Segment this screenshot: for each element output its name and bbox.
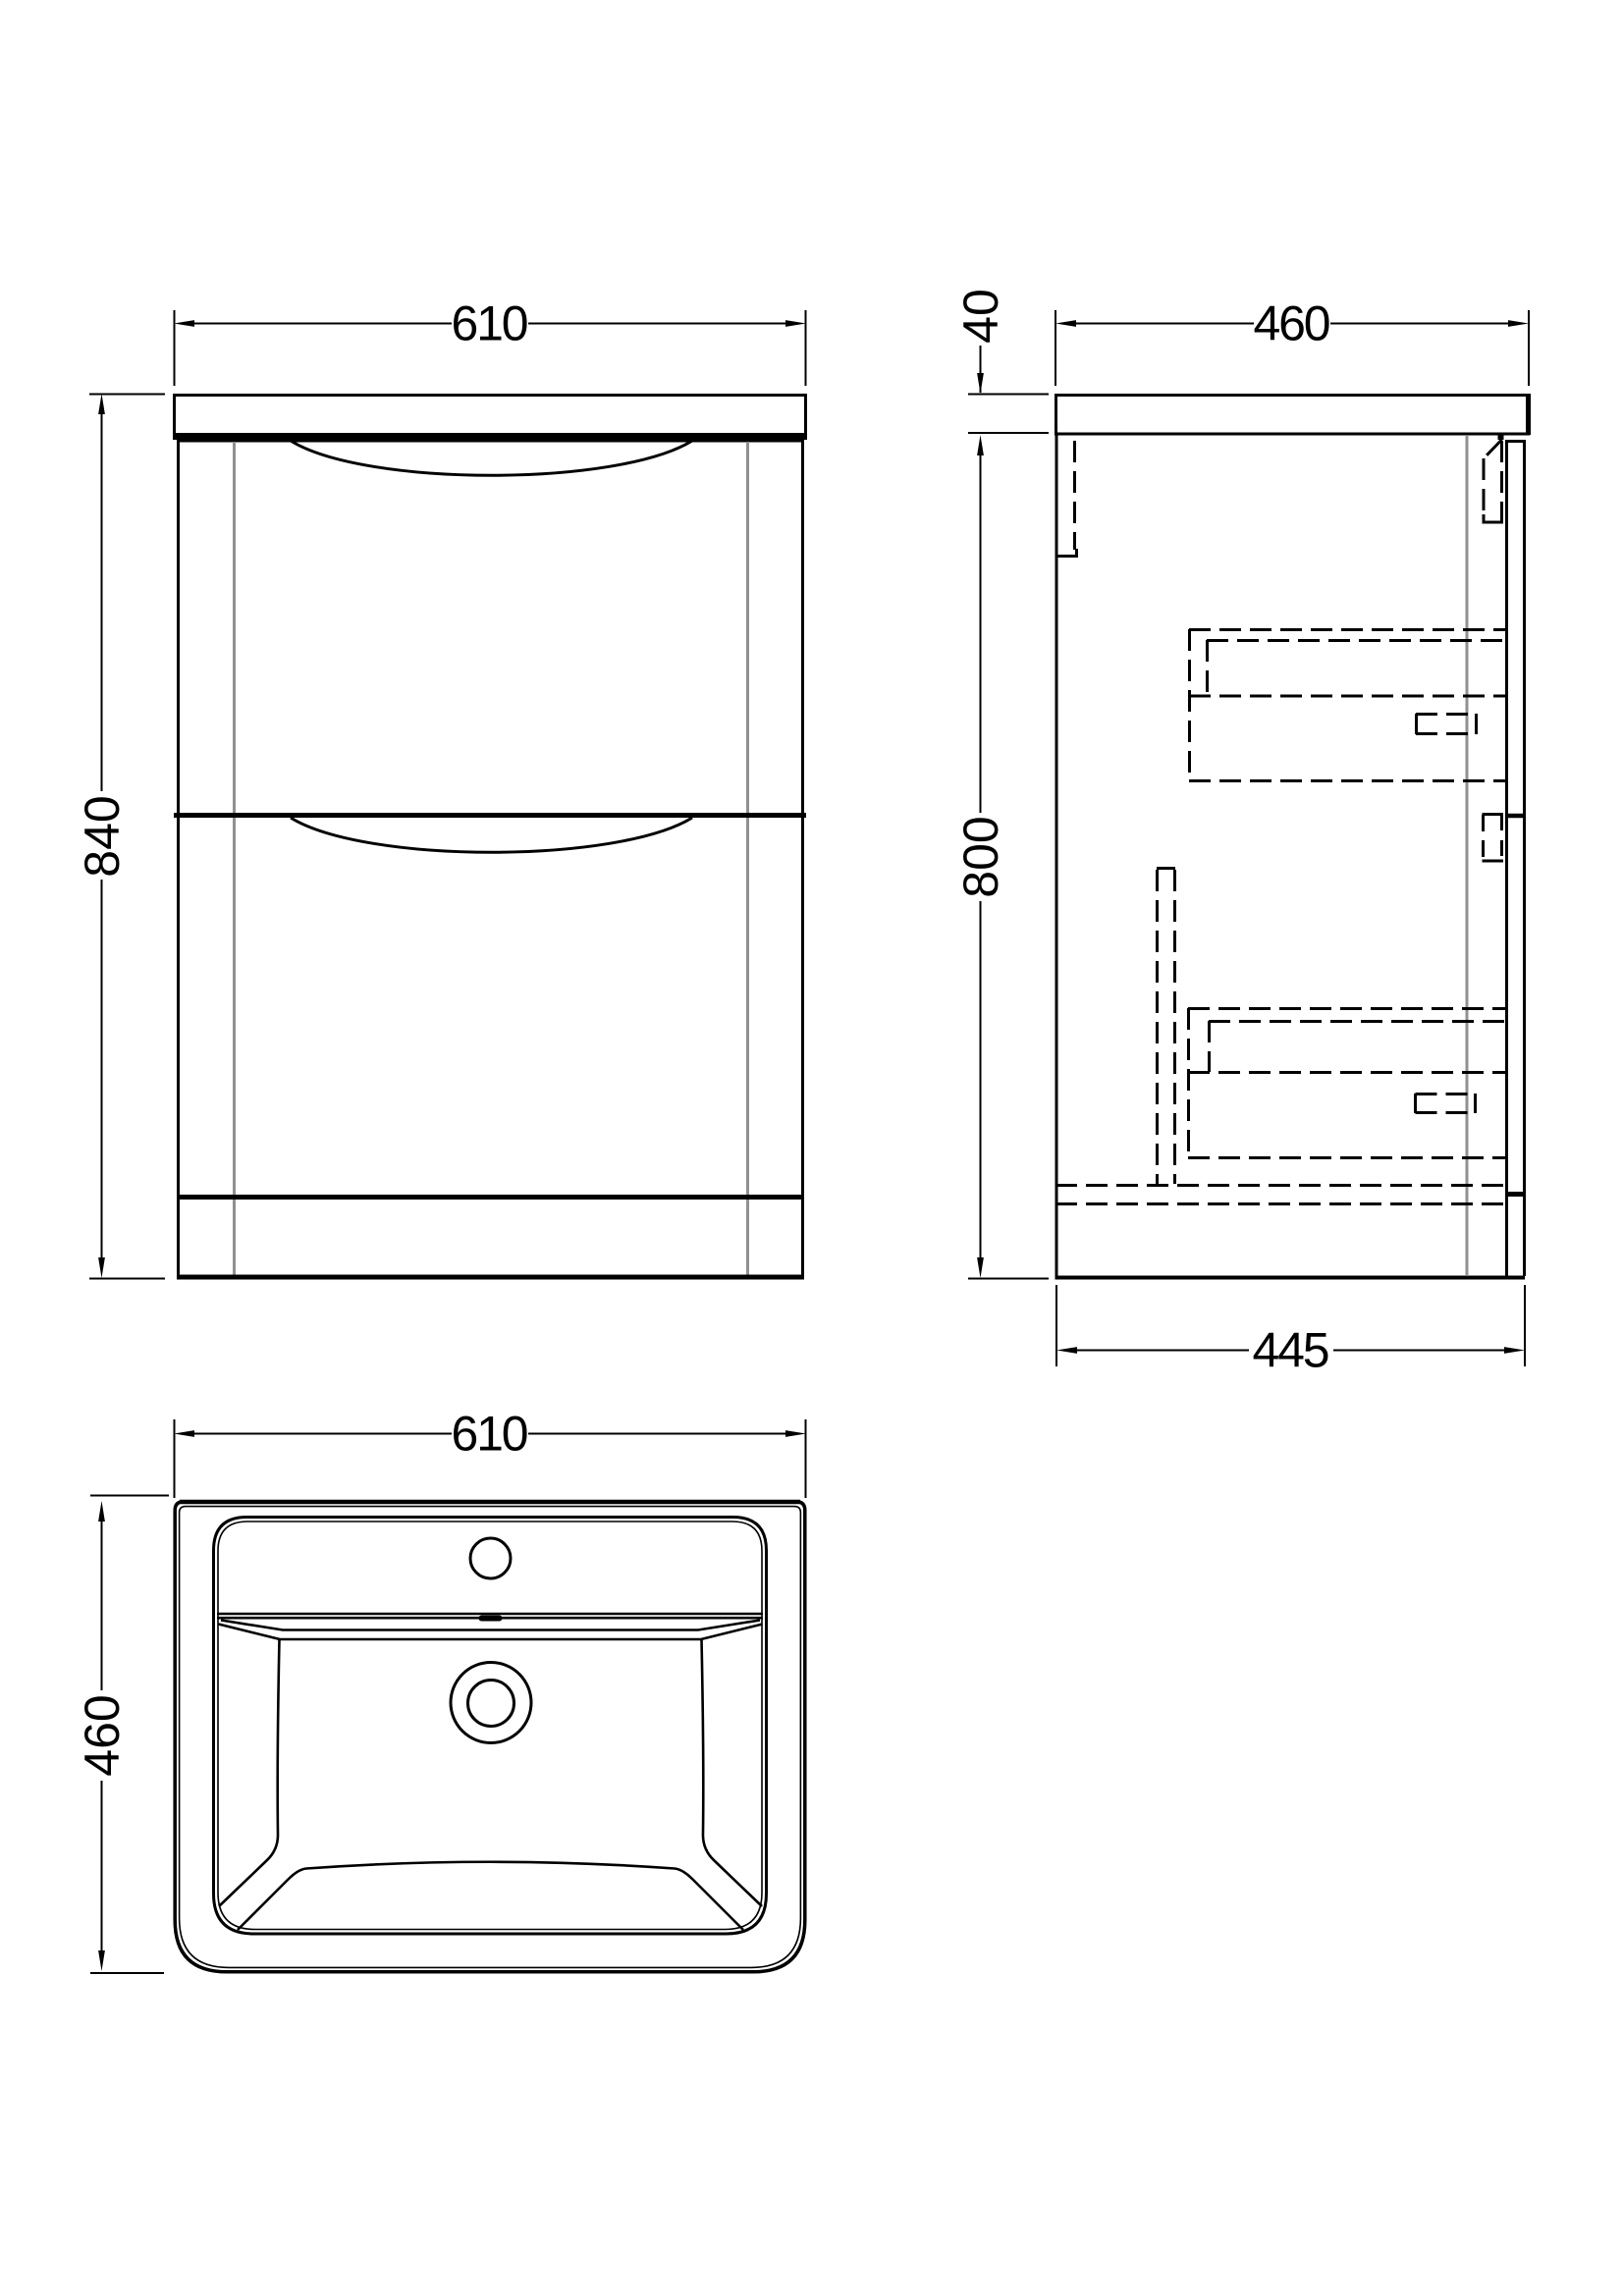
svg-text:840: 840 (75, 795, 130, 877)
svg-text:460: 460 (1254, 296, 1331, 351)
svg-text:610: 610 (452, 1407, 529, 1462)
svg-text:610: 610 (452, 296, 529, 351)
svg-text:40: 40 (953, 289, 1008, 344)
svg-text:800: 800 (953, 816, 1008, 897)
svg-text:460: 460 (75, 1694, 130, 1776)
svg-text:445: 445 (1253, 1323, 1330, 1378)
